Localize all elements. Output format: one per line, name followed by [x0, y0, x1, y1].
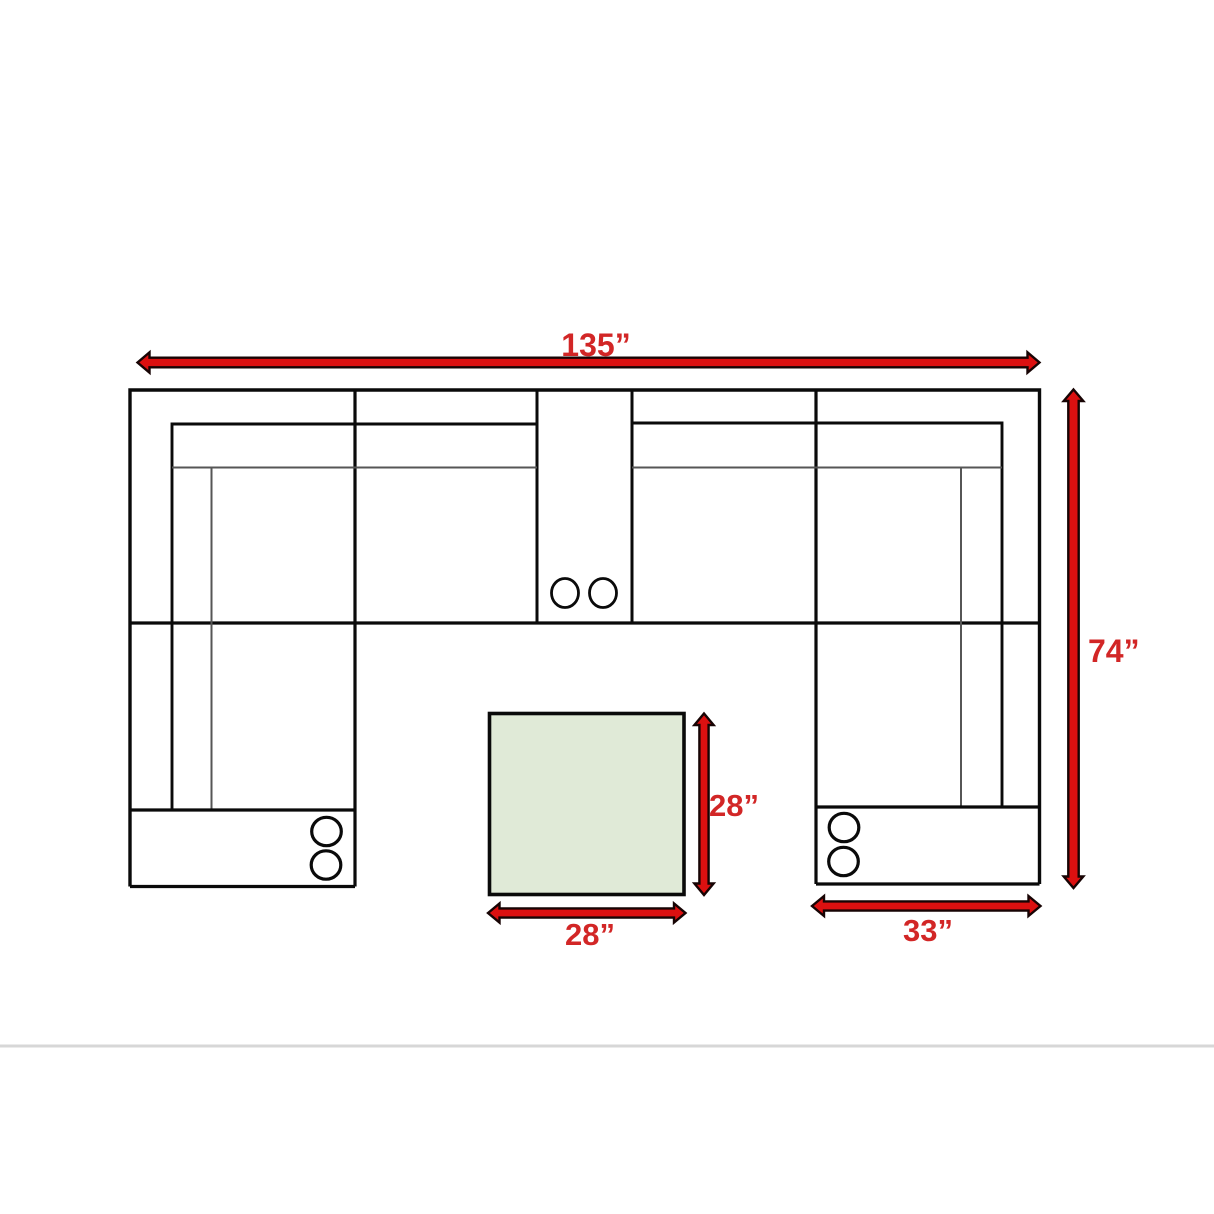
svg-text:28”: 28” — [709, 788, 759, 823]
svg-text:74”: 74” — [1088, 633, 1140, 669]
svg-text:135”: 135” — [561, 327, 630, 363]
svg-text:33”: 33” — [903, 913, 953, 948]
svg-text:28”: 28” — [565, 917, 615, 952]
